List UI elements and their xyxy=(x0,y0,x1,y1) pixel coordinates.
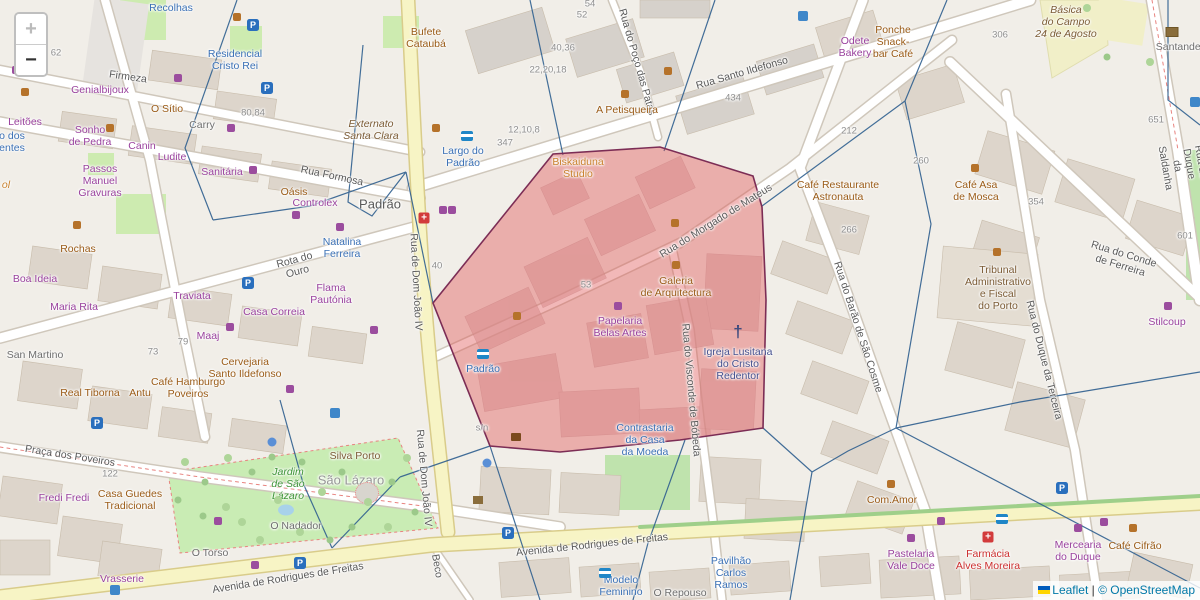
osm-link[interactable]: © OpenStreetMap xyxy=(1098,583,1195,597)
zoom-in-button[interactable]: + xyxy=(16,14,46,44)
map-canvas[interactable]: Rua FormosaRua Santo IldefonsoRua do Poç… xyxy=(0,0,1200,600)
attribution-separator: | xyxy=(1088,583,1098,597)
basemap-tiles xyxy=(0,0,1200,600)
highlight-region xyxy=(433,147,766,452)
attribution-bar: Leaflet | © OpenStreetMap xyxy=(1033,581,1200,600)
leaflet-link[interactable]: Leaflet xyxy=(1052,583,1088,597)
ukraine-flag-icon xyxy=(1038,586,1050,594)
zoom-control: + − xyxy=(14,12,48,77)
zoom-out-button[interactable]: − xyxy=(16,44,46,75)
